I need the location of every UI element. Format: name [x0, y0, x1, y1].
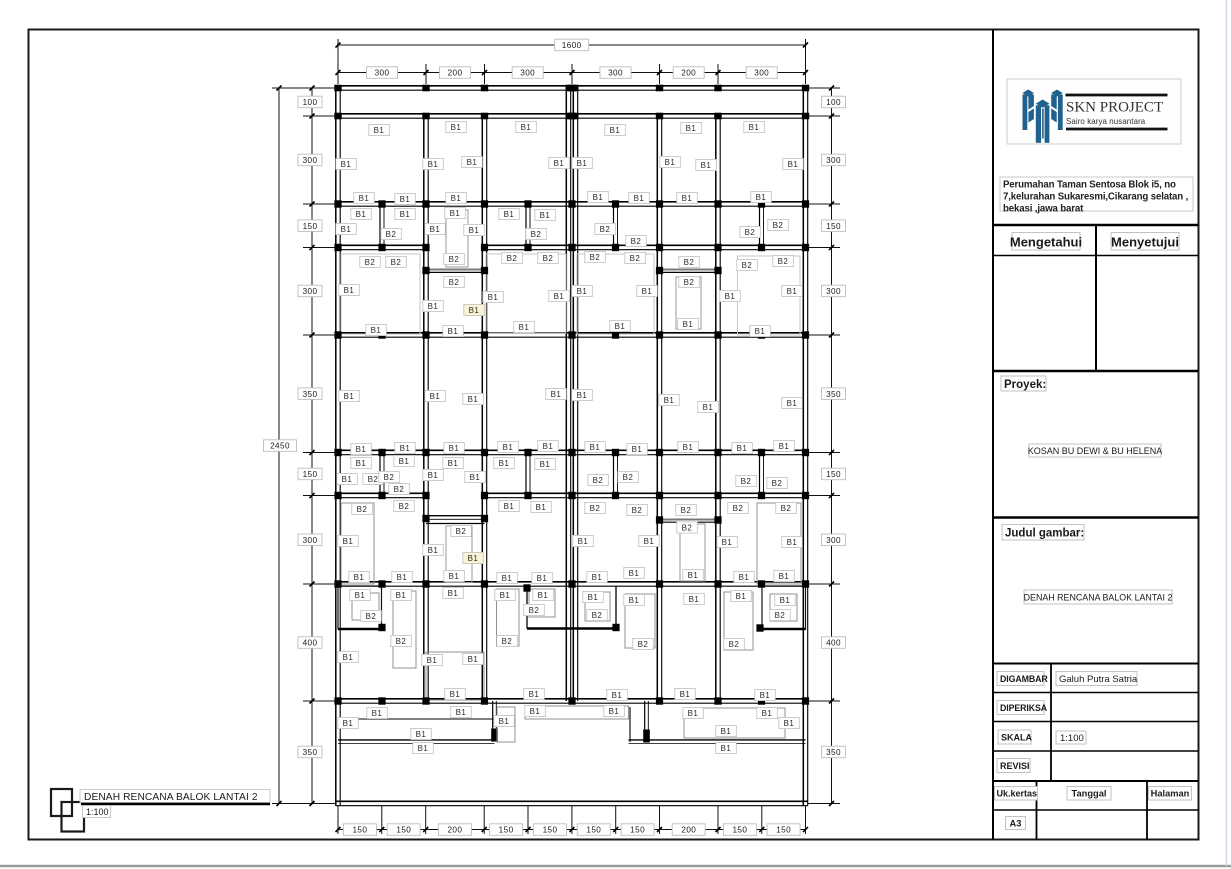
svg-text:300: 300 [608, 69, 623, 78]
svg-text:150: 150 [303, 222, 318, 231]
svg-text:B1: B1 [722, 538, 733, 547]
svg-text:B1: B1 [371, 326, 382, 335]
svg-text:B1: B1 [760, 691, 771, 700]
svg-text:150: 150 [543, 826, 558, 835]
svg-text:B1: B1 [427, 656, 438, 665]
svg-text:B2: B2 [386, 230, 397, 239]
svg-text:B1: B1 [450, 690, 461, 699]
svg-text:B1: B1 [540, 460, 551, 469]
svg-text:B1: B1 [500, 591, 511, 600]
svg-text:300: 300 [303, 536, 318, 545]
svg-text:B1: B1 [450, 209, 461, 218]
svg-text:B1: B1 [536, 503, 547, 512]
svg-text:B1: B1 [612, 691, 623, 700]
svg-text:B2: B2 [681, 506, 692, 515]
svg-text:B1: B1 [428, 546, 439, 555]
svg-text:B1: B1 [504, 210, 515, 219]
svg-text:B2: B2 [593, 476, 604, 485]
svg-text:B2: B2 [365, 258, 376, 267]
svg-text:B2: B2 [456, 527, 467, 536]
svg-text:bekasi ,jawa barat: bekasi ,jawa barat [1003, 204, 1084, 215]
svg-text:B1: B1 [470, 473, 481, 482]
svg-text:B1: B1 [593, 193, 604, 202]
svg-text:B1: B1 [554, 159, 565, 168]
svg-text:B1: B1 [787, 287, 798, 296]
svg-text:B1: B1 [725, 292, 736, 301]
svg-text:B1: B1 [499, 717, 510, 726]
svg-text:B2: B2 [729, 640, 740, 649]
svg-text:B1: B1 [416, 730, 427, 739]
svg-text:150: 150 [826, 222, 841, 231]
svg-text:B1: B1 [344, 392, 355, 401]
svg-text:B2: B2 [638, 640, 649, 649]
svg-text:B2: B2 [394, 485, 405, 494]
svg-text:B1: B1 [780, 596, 791, 605]
svg-text:B2: B2 [531, 230, 542, 239]
svg-text:350: 350 [826, 390, 841, 399]
svg-text:B2: B2 [507, 254, 518, 263]
svg-text:B1: B1 [451, 123, 462, 132]
svg-text:B1: B1 [577, 391, 588, 400]
svg-text:B1: B1 [341, 160, 352, 169]
svg-text:B1: B1 [503, 443, 514, 452]
svg-text:B1: B1 [502, 574, 513, 583]
svg-text:B1: B1 [355, 591, 366, 600]
svg-text:300: 300 [303, 156, 318, 165]
svg-text:B2: B2 [368, 475, 379, 484]
svg-text:350: 350 [826, 748, 841, 757]
svg-text:B1: B1 [448, 589, 459, 598]
svg-text:300: 300 [375, 69, 390, 78]
svg-text:B2: B2 [590, 253, 601, 262]
svg-text:B1: B1 [399, 457, 410, 466]
svg-text:B2: B2 [773, 221, 784, 230]
svg-text:B1: B1 [721, 727, 732, 736]
svg-text:7,kelurahan Sukaresmi,Cikarang: 7,kelurahan Sukaresmi,Cikarang selatan , [1003, 192, 1189, 203]
svg-text:B1: B1 [468, 655, 479, 664]
svg-text:B1: B1 [468, 395, 479, 404]
svg-text:B1: B1 [689, 595, 700, 604]
svg-text:B1: B1 [396, 591, 407, 600]
svg-text:B1: B1 [701, 161, 712, 170]
svg-text:Mengetahui: Mengetahui [1010, 235, 1082, 250]
svg-text:B1: B1 [538, 591, 549, 600]
svg-text:B1: B1 [644, 537, 655, 546]
svg-text:B1: B1 [537, 574, 548, 583]
svg-text:350: 350 [303, 390, 318, 399]
svg-text:B1: B1 [634, 194, 645, 203]
svg-text:150: 150 [826, 470, 841, 479]
svg-text:B2: B2 [733, 504, 744, 513]
svg-text:DENAH RENCANA BALOK LANTAI 2: DENAH RENCANA BALOK LANTAI 2 [1024, 593, 1173, 603]
svg-text:B1: B1 [664, 396, 675, 405]
svg-text:B1: B1 [590, 443, 601, 452]
svg-text:B2: B2 [741, 477, 752, 486]
svg-text:B1: B1 [609, 707, 620, 716]
svg-text:200: 200 [681, 69, 696, 78]
svg-text:DIPERIKSA: DIPERIKSA [1000, 703, 1048, 713]
svg-text:B2: B2 [391, 258, 402, 267]
svg-text:B2: B2 [742, 261, 753, 270]
svg-text:300: 300 [826, 536, 841, 545]
svg-text:B1: B1 [578, 537, 589, 546]
svg-text:B1: B1 [356, 445, 367, 454]
svg-text:B1: B1 [488, 293, 499, 302]
svg-text:200: 200 [447, 826, 462, 835]
svg-text:REVISI: REVISI [1000, 761, 1030, 771]
svg-text:B1: B1 [341, 225, 352, 234]
svg-text:B2: B2 [396, 637, 407, 646]
svg-text:350: 350 [303, 748, 318, 757]
svg-text:B1: B1 [521, 123, 532, 132]
svg-text:B1: B1 [397, 573, 408, 582]
svg-text:150: 150 [732, 826, 747, 835]
svg-text:B2: B2 [592, 611, 603, 620]
svg-text:B1: B1 [372, 709, 383, 718]
svg-text:B1: B1 [519, 323, 530, 332]
svg-text:300: 300 [303, 287, 318, 296]
svg-text:B1: B1 [430, 392, 441, 401]
svg-text:SKALA: SKALA [1001, 733, 1032, 743]
svg-text:B2: B2 [543, 254, 554, 263]
svg-text:B1: B1 [642, 287, 653, 296]
svg-text:B1: B1 [504, 502, 515, 511]
svg-text:150: 150 [776, 826, 791, 835]
svg-text:B1: B1 [721, 744, 732, 753]
svg-text:B1: B1 [400, 210, 411, 219]
svg-text:B2: B2 [600, 225, 611, 234]
svg-text:B2: B2 [623, 473, 634, 482]
svg-text:B2: B2 [529, 606, 540, 615]
svg-text:B1: B1 [342, 475, 353, 484]
svg-text:B2: B2 [781, 504, 792, 513]
svg-text:B1: B1 [400, 444, 411, 453]
svg-text:B1: B1 [359, 194, 370, 203]
svg-text:B1: B1 [784, 719, 795, 728]
svg-text:Sairo karya nusantara: Sairo karya nusantara [1066, 117, 1146, 126]
svg-text:B1: B1 [449, 444, 460, 453]
svg-text:B1: B1 [577, 287, 588, 296]
svg-text:B1: B1 [779, 442, 790, 451]
svg-text:B1: B1 [615, 322, 626, 331]
svg-text:B2: B2 [449, 278, 460, 287]
svg-text:B1: B1 [762, 709, 773, 718]
svg-text:B2: B2 [775, 611, 786, 620]
svg-text:B1: B1 [686, 124, 697, 133]
svg-text:B2: B2 [632, 506, 643, 515]
svg-text:B1: B1 [451, 194, 462, 203]
svg-text:B1: B1 [682, 194, 693, 203]
svg-text:B1: B1 [756, 193, 767, 202]
svg-text:B2: B2 [449, 255, 460, 264]
svg-text:B2: B2 [502, 637, 513, 646]
svg-text:KOSAN BU DEWI & BU HELENA: KOSAN BU DEWI & BU HELENA [1028, 446, 1163, 456]
svg-text:B1: B1 [577, 159, 588, 168]
svg-text:B1: B1 [688, 571, 699, 580]
svg-text:SKN PROJECT: SKN PROJECT [1066, 100, 1163, 116]
svg-text:B2: B2 [631, 237, 642, 246]
svg-text:B2: B2 [357, 505, 368, 514]
svg-text:B2: B2 [772, 479, 783, 488]
svg-text:300: 300 [754, 69, 769, 78]
svg-text:B1: B1 [343, 719, 354, 728]
svg-text:B1: B1 [683, 320, 694, 329]
svg-text:B1: B1 [530, 707, 541, 716]
svg-text:B1: B1 [665, 158, 676, 167]
svg-text:B2: B2 [630, 254, 641, 263]
svg-text:B2: B2 [682, 524, 693, 533]
svg-text:B1: B1 [448, 327, 459, 336]
svg-text:B1: B1 [449, 572, 460, 581]
svg-text:150: 150 [499, 826, 514, 835]
svg-text:B1: B1 [499, 459, 510, 468]
svg-text:B1: B1 [588, 593, 599, 602]
svg-text:B1: B1 [428, 160, 439, 169]
svg-text:100: 100 [303, 98, 318, 107]
svg-text:150: 150 [396, 826, 411, 835]
svg-text:B1: B1 [551, 390, 562, 399]
svg-text:300: 300 [826, 287, 841, 296]
svg-text:B2: B2 [684, 258, 695, 267]
svg-text:B2: B2 [384, 473, 395, 482]
svg-text:B1: B1 [430, 225, 441, 234]
svg-text:B1: B1 [354, 573, 365, 582]
svg-text:Proyek:: Proyek: [1004, 379, 1046, 391]
svg-text:Tanggal: Tanggal [1072, 789, 1107, 799]
svg-text:B1: B1 [468, 554, 479, 563]
svg-text:150: 150 [352, 826, 367, 835]
svg-text:Perumahan Taman Sentosa Blok i: Perumahan Taman Sentosa Blok i5, no [1003, 180, 1176, 191]
svg-text:100: 100 [826, 98, 841, 107]
svg-text:B2: B2 [366, 612, 377, 621]
svg-text:150: 150 [303, 470, 318, 479]
svg-text:B1: B1 [540, 211, 551, 220]
svg-text:1600: 1600 [562, 41, 582, 50]
svg-text:B1: B1 [632, 445, 643, 454]
svg-text:B1: B1 [554, 292, 565, 301]
svg-text:B2: B2 [745, 228, 756, 237]
svg-text:B2: B2 [684, 278, 695, 287]
svg-text:1:100: 1:100 [86, 807, 109, 817]
svg-text:B1: B1 [749, 123, 760, 132]
svg-text:300: 300 [826, 156, 841, 165]
svg-text:B1: B1 [787, 538, 798, 547]
svg-text:Halaman: Halaman [1151, 789, 1190, 799]
svg-text:B1: B1 [343, 537, 354, 546]
svg-text:Menyetujui: Menyetujui [1111, 235, 1179, 250]
svg-text:1:100: 1:100 [1060, 733, 1084, 744]
svg-text:B2: B2 [399, 502, 410, 511]
svg-text:A3: A3 [1010, 819, 1022, 829]
svg-text:Judul gambar:: Judul gambar: [1005, 528, 1084, 540]
svg-text:B1: B1 [739, 573, 750, 582]
svg-text:B1: B1 [680, 690, 691, 699]
svg-text:B1: B1 [469, 306, 480, 315]
svg-text:B1: B1 [688, 709, 699, 718]
svg-text:B1: B1 [343, 653, 354, 662]
svg-text:B1: B1 [787, 399, 798, 408]
svg-text:B1: B1 [529, 690, 540, 699]
svg-text:B1: B1 [703, 403, 714, 412]
svg-text:B1: B1 [736, 592, 747, 601]
svg-text:Galuh Putra Satria: Galuh Putra Satria [1059, 674, 1138, 685]
svg-text:300: 300 [520, 69, 535, 78]
svg-text:DIGAMBAR: DIGAMBAR [1000, 674, 1048, 684]
svg-text:B1: B1 [356, 459, 367, 468]
svg-text:B1: B1 [448, 459, 459, 468]
svg-text:B1: B1 [469, 226, 480, 235]
svg-text:B1: B1 [418, 744, 429, 753]
svg-text:B1: B1 [543, 442, 554, 451]
svg-text:B1: B1 [400, 195, 411, 204]
svg-text:B1: B1 [629, 569, 640, 578]
svg-text:Uk.kertas: Uk.kertas [997, 789, 1038, 799]
svg-text:B1: B1 [456, 708, 467, 717]
svg-text:2450: 2450 [270, 442, 290, 451]
svg-text:B1: B1 [428, 471, 439, 480]
svg-text:B1: B1 [592, 573, 603, 582]
svg-text:150: 150 [586, 826, 601, 835]
svg-text:B1: B1 [467, 158, 478, 167]
svg-text:B1: B1 [374, 126, 385, 135]
svg-text:B1: B1 [779, 572, 790, 581]
svg-text:B1: B1 [629, 596, 640, 605]
svg-text:B1: B1 [610, 126, 621, 135]
svg-text:B1: B1 [737, 444, 748, 453]
svg-text:400: 400 [826, 639, 841, 648]
svg-text:200: 200 [448, 69, 463, 78]
svg-text:B2: B2 [778, 257, 789, 266]
svg-text:B1: B1 [356, 210, 367, 219]
svg-text:B1: B1 [344, 286, 355, 295]
svg-text:150: 150 [630, 826, 645, 835]
svg-text:400: 400 [303, 639, 318, 648]
svg-text:B1: B1 [683, 443, 694, 452]
svg-text:B1: B1 [788, 160, 799, 169]
svg-text:B2: B2 [590, 504, 601, 513]
svg-text:B1: B1 [755, 327, 766, 336]
svg-text:B1: B1 [428, 302, 439, 311]
svg-text:200: 200 [681, 826, 696, 835]
svg-text:DENAH RENCANA BALOK LANTAI 2: DENAH RENCANA BALOK LANTAI 2 [84, 792, 258, 803]
